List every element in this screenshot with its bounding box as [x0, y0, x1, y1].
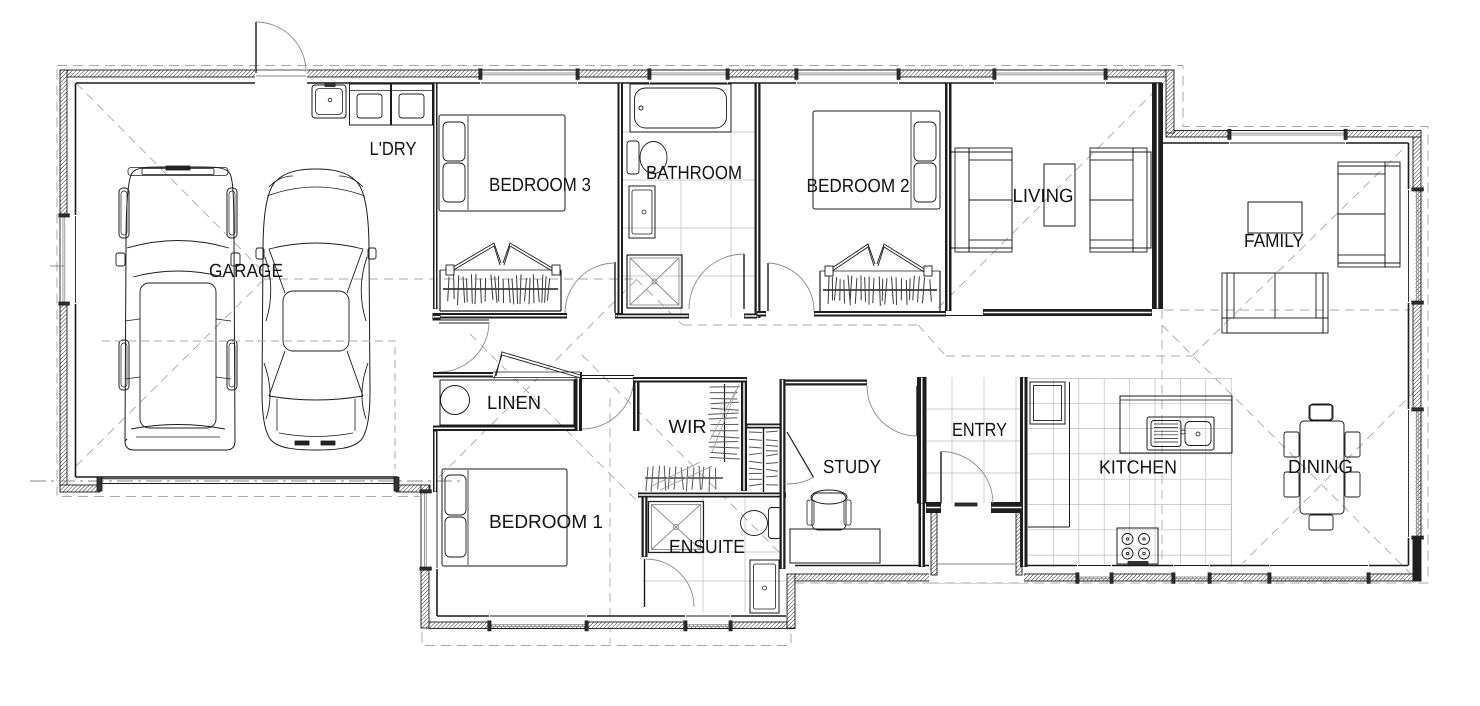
svg-text:BEDROOM 1: BEDROOM 1 — [489, 512, 603, 533]
svg-text:LIVING: LIVING — [1013, 186, 1074, 207]
svg-text:KITCHEN: KITCHEN — [1099, 458, 1177, 479]
svg-text:ENSUITE: ENSUITE — [669, 537, 745, 558]
svg-text:STUDY: STUDY — [823, 457, 881, 478]
svg-text:ENTRY: ENTRY — [952, 420, 1007, 441]
svg-text:BEDROOM 3: BEDROOM 3 — [489, 175, 591, 196]
svg-text:LINEN: LINEN — [487, 393, 541, 414]
svg-text:DINING: DINING — [1288, 457, 1353, 478]
svg-text:L'DRY: L'DRY — [370, 139, 417, 160]
svg-text:WIR: WIR — [669, 417, 707, 438]
svg-text:FAMILY: FAMILY — [1244, 231, 1304, 252]
svg-text:GARAGE: GARAGE — [209, 261, 283, 282]
svg-text:BATHROOM: BATHROOM — [646, 163, 742, 184]
svg-text:BEDROOM 2: BEDROOM 2 — [807, 176, 910, 197]
